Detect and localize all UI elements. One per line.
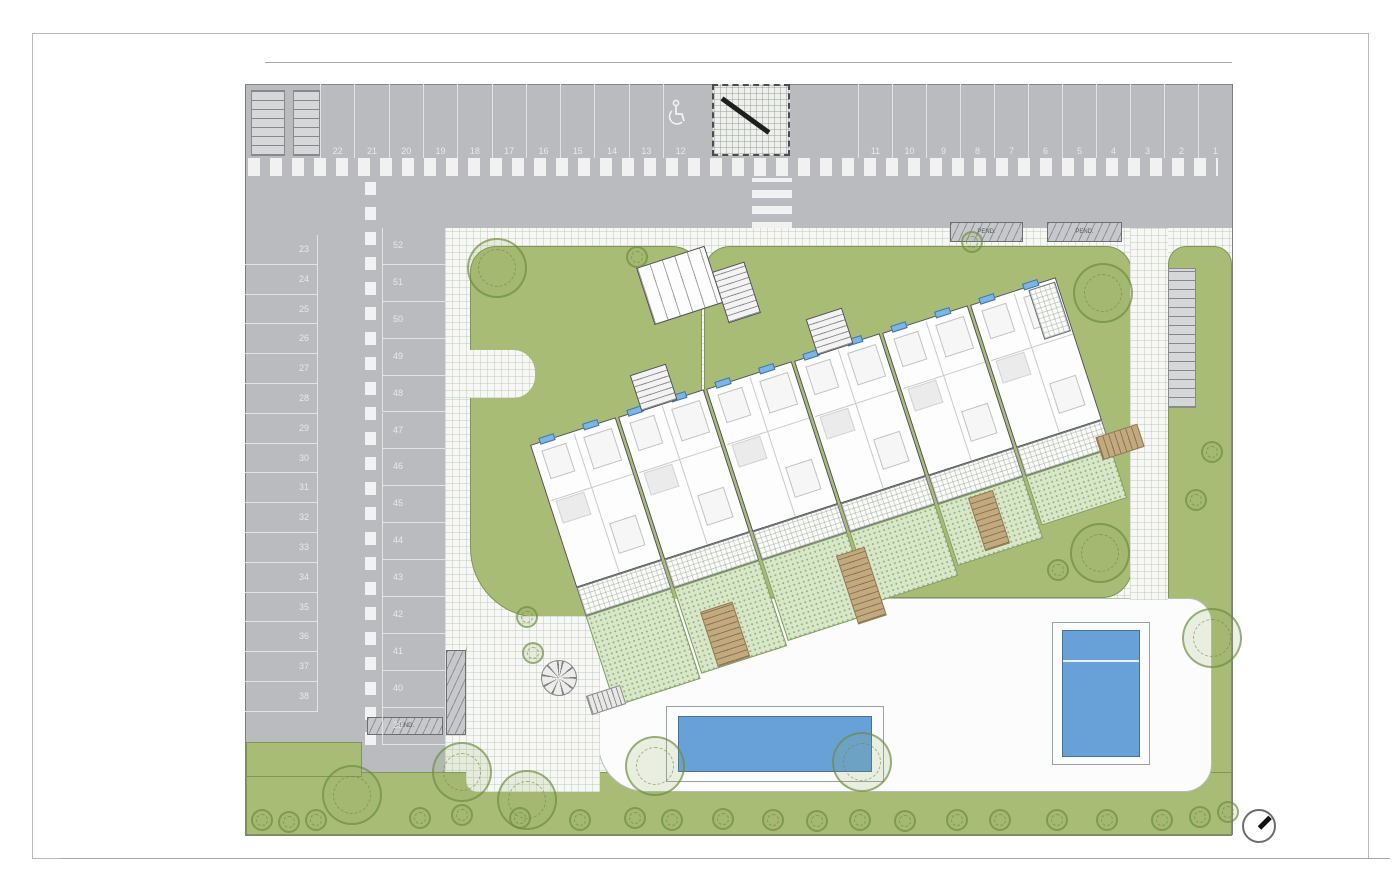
parking-stall: 27 <box>245 354 318 384</box>
stall-number: 5 <box>1063 146 1096 156</box>
stall-number: 36 <box>299 631 309 641</box>
path-pocket <box>445 350 535 398</box>
tree-small <box>1217 801 1239 823</box>
stall-number: 43 <box>393 572 403 582</box>
parking-stall: 21 <box>354 84 388 158</box>
parking-stall: 6 <box>1028 84 1062 158</box>
stall-number: 2 <box>1165 146 1198 156</box>
tree-small <box>989 809 1011 831</box>
stall-number: 19 <box>424 146 457 156</box>
stall-number: 50 <box>393 314 403 324</box>
parking-stall: 28 <box>245 384 318 414</box>
parking-stall: 26 <box>245 324 318 354</box>
stall-number: 24 <box>299 274 309 284</box>
tree-small <box>569 809 591 831</box>
bed <box>541 443 575 480</box>
stall-number: 18 <box>458 146 491 156</box>
parking-stall: 45 <box>382 486 445 523</box>
parking-stall: 52 <box>382 228 445 265</box>
tree-large <box>1073 263 1133 323</box>
parking-stall: 17 <box>492 84 526 158</box>
stall-number: 44 <box>393 535 403 545</box>
tree-small <box>1047 559 1069 581</box>
stall-number: 48 <box>393 388 403 398</box>
parking-stall: 30 <box>245 444 318 474</box>
street-line <box>60 858 1390 859</box>
tree-small <box>409 807 431 829</box>
north-property-line <box>265 62 1232 63</box>
stall-number: 38 <box>299 691 309 701</box>
bike-rack-northwest-2 <box>293 90 320 156</box>
north-arrow-icon <box>1242 809 1276 843</box>
table <box>1049 375 1086 414</box>
stall-number: 20 <box>390 146 423 156</box>
tree-small <box>961 231 983 253</box>
tree-small <box>451 804 473 826</box>
stall-number: 26 <box>299 333 309 343</box>
tree-small <box>522 642 544 664</box>
parking-stall: 34 <box>245 563 318 593</box>
stall-number: 40 <box>393 683 403 693</box>
bed <box>847 344 886 386</box>
parking-stall: 8 <box>960 84 994 158</box>
parking-stall: 18 <box>457 84 491 158</box>
tree-large <box>832 732 892 792</box>
stall-number: 17 <box>493 146 526 156</box>
tree-large <box>1070 523 1130 583</box>
tree-small <box>1046 809 1068 831</box>
tree-small <box>1189 806 1211 828</box>
parking-stall: 20 <box>389 84 423 158</box>
stall-number: 4 <box>1097 146 1130 156</box>
tree-small <box>1151 809 1173 831</box>
parking-stall: 38 <box>245 682 318 712</box>
parking-stall: 24 <box>245 265 318 295</box>
table <box>697 487 734 526</box>
bed <box>583 428 622 470</box>
parking-stall: 40 <box>382 671 445 708</box>
stall-number: 41 <box>393 646 403 656</box>
stall-number: 51 <box>393 277 403 287</box>
stall-number: 9 <box>927 146 960 156</box>
parking-stall: 1 <box>1198 84 1232 158</box>
parking-stall: 32 <box>245 503 318 533</box>
parking-stall: 25 <box>245 295 318 325</box>
stall-number: 32 <box>299 512 309 522</box>
tree-small <box>849 809 871 831</box>
parking-stall: 51 <box>382 265 445 302</box>
stall-number: 34 <box>299 572 309 582</box>
parking-stall: 15 <box>560 84 594 158</box>
parking-stall: 48 <box>382 376 445 413</box>
stall-number: 47 <box>393 425 403 435</box>
stall-number: 16 <box>527 146 560 156</box>
tree-small <box>762 809 784 831</box>
parking-stall: 13 <box>629 84 663 158</box>
stall-number: 12 <box>664 146 697 156</box>
lane-centerline <box>365 180 376 745</box>
tree-large <box>467 238 527 298</box>
tree-small <box>1096 809 1118 831</box>
tree-small <box>1201 441 1223 463</box>
table <box>873 431 910 470</box>
parking-stall: 43 <box>382 560 445 597</box>
stall-number: 14 <box>595 146 628 156</box>
parking-stall: 9 <box>926 84 960 158</box>
pool-lane-line <box>1063 660 1139 662</box>
tree-large <box>432 742 492 802</box>
parking-stall: 10 <box>892 84 926 158</box>
stall-number: 33 <box>299 542 309 552</box>
parking-stall: 7 <box>994 84 1028 158</box>
tree-small <box>712 808 734 830</box>
parking-stall: 49 <box>382 339 445 376</box>
stall-number: 1 <box>1199 146 1232 156</box>
tree-small <box>278 811 300 833</box>
parking-stall: 11 <box>858 84 892 158</box>
stall-number: 42 <box>393 609 403 619</box>
bed <box>671 400 710 442</box>
parking-stall: 4 <box>1096 84 1130 158</box>
stall-number: 46 <box>393 461 403 471</box>
stall-number: 25 <box>299 304 309 314</box>
parking-stall: 3 <box>1130 84 1164 158</box>
parking-stall: 29 <box>245 414 318 444</box>
crosswalk-gate <box>752 178 792 230</box>
ramp-south-vertical <box>446 650 466 735</box>
stall-number: 11 <box>859 146 892 156</box>
table <box>961 403 998 442</box>
tree-small <box>661 809 683 831</box>
stall-number: 7 <box>995 146 1028 156</box>
ramp-label: PEND. <box>1075 229 1093 235</box>
bed <box>935 316 974 358</box>
pool-small <box>1062 630 1140 757</box>
parking-stall: 46 <box>382 449 445 486</box>
stall-number: 39 <box>393 720 403 730</box>
stall-number: 29 <box>299 423 309 433</box>
bed <box>893 331 927 368</box>
parking-stall: 5 <box>1062 84 1096 158</box>
tree-small <box>626 246 648 268</box>
tree-large <box>625 736 685 796</box>
tree-small <box>509 807 531 829</box>
tree-small <box>806 810 828 832</box>
site-south-boundary <box>245 835 1232 836</box>
parking-stall: 41 <box>382 634 445 671</box>
tree-small <box>946 809 968 831</box>
parking-stall: 14 <box>594 84 628 158</box>
stall-number: 27 <box>299 363 309 373</box>
stall-number: 8 <box>961 146 994 156</box>
bike-rack-east <box>1168 268 1196 408</box>
tree-large <box>1182 608 1242 668</box>
tree-large <box>322 765 382 825</box>
parking-stall: 44 <box>382 523 445 560</box>
stall-number: 10 <box>893 146 926 156</box>
stall-number: 23 <box>299 244 309 254</box>
compass-needle <box>1258 816 1272 830</box>
parking-stall: 42 <box>382 597 445 634</box>
stall-number: 45 <box>393 498 403 508</box>
parking-stall: 2 <box>1164 84 1198 158</box>
tree-small <box>624 807 646 829</box>
stall-number: 21 <box>355 146 388 156</box>
bed <box>981 303 1015 340</box>
stall-number: 30 <box>299 453 309 463</box>
tree-small <box>1185 489 1207 511</box>
parking-stall: 39 <box>382 708 445 745</box>
parking-stall: 16 <box>526 84 560 158</box>
stall-number: 35 <box>299 602 309 612</box>
parking-stall: 19 <box>423 84 457 158</box>
stall-number: 13 <box>630 146 663 156</box>
bed <box>717 387 751 424</box>
path-east-corridor <box>1130 228 1168 600</box>
stall-number: 3 <box>1131 146 1164 156</box>
parking-stall: 36 <box>245 622 318 652</box>
bike-rack-northwest-1 <box>251 90 285 156</box>
stall-number: 49 <box>393 351 403 361</box>
stall-number: 15 <box>561 146 594 156</box>
parking-stall: 47 <box>382 413 445 450</box>
tree-small <box>251 809 273 831</box>
parking-stall: 33 <box>245 533 318 563</box>
spiral-stair <box>541 660 577 696</box>
stall-number: 31 <box>299 482 309 492</box>
parking-stall: 50 <box>382 302 445 339</box>
parking-stall: 31 <box>245 473 318 503</box>
parking-stall: 22 <box>320 84 354 158</box>
crosswalk-horizontal <box>248 158 1218 176</box>
bed <box>759 372 798 414</box>
tree-small <box>305 809 327 831</box>
ramp-northeast-2: PEND. <box>1047 222 1122 242</box>
parking-stall: 23 <box>245 235 318 265</box>
stall-number: 28 <box>299 393 309 403</box>
parking-stall: 37 <box>245 652 318 682</box>
parking-stall: 12 <box>663 84 697 158</box>
stall-number: 6 <box>1029 146 1062 156</box>
parking-stall: 35 <box>245 593 318 623</box>
tree-small <box>894 810 916 832</box>
site-plan-canvas: PEND. PEND. PEND. 2221201918171615141 <box>0 0 1400 895</box>
bed <box>629 415 663 452</box>
stall-number: 52 <box>393 240 403 250</box>
stall-number: 37 <box>299 661 309 671</box>
bed <box>805 359 839 396</box>
tree-small <box>516 606 538 628</box>
table <box>609 515 646 554</box>
table <box>785 459 822 498</box>
site-east-boundary <box>1232 84 1233 835</box>
stall-number: 22 <box>321 146 354 156</box>
